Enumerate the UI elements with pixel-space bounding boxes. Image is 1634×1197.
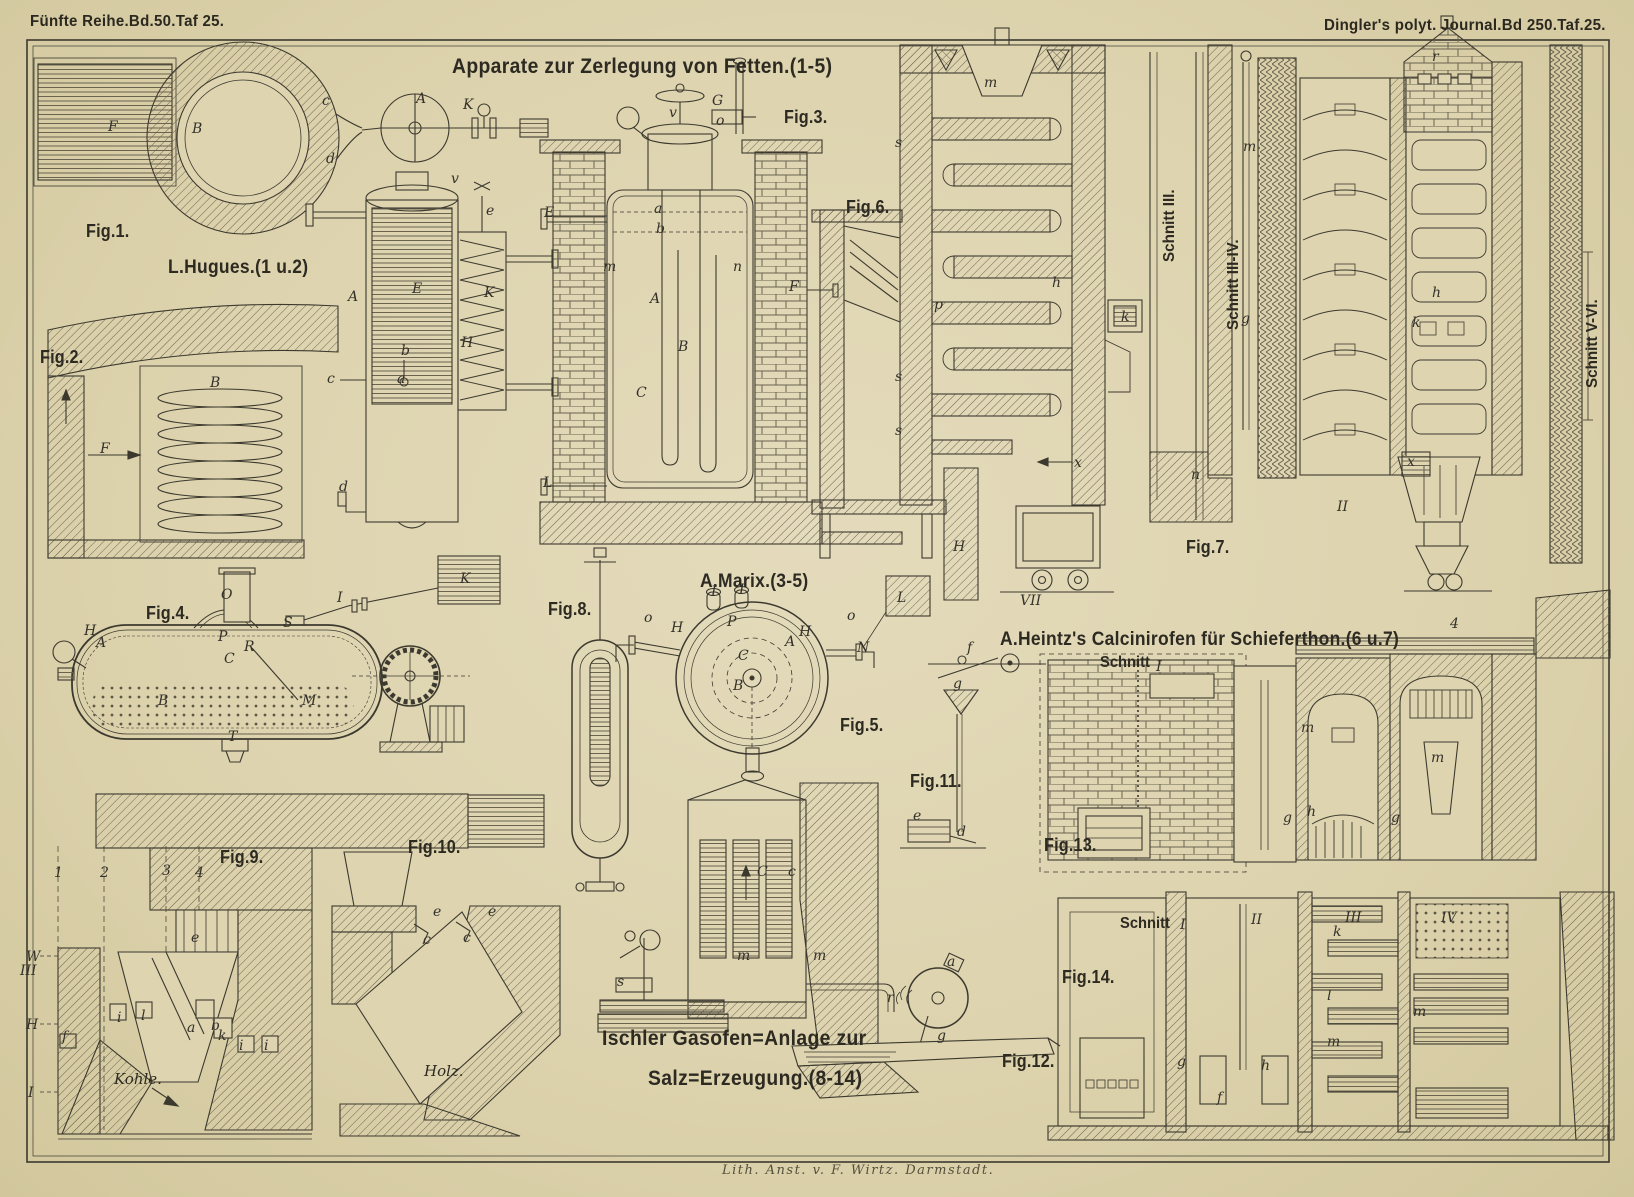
part-label: 4: [195, 866, 204, 880]
part-label: i: [239, 1039, 243, 1053]
part-label: k: [1121, 310, 1129, 324]
part-label: r: [1432, 50, 1439, 64]
part-label: 3: [162, 864, 171, 878]
part-label: R: [244, 640, 255, 654]
part-label: p: [934, 298, 943, 312]
part-label: o: [847, 609, 855, 623]
part-label: g: [937, 1029, 946, 1043]
part-label: K: [463, 98, 473, 112]
part-label: h: [1261, 1059, 1270, 1073]
engraving: [0, 0, 1634, 1197]
lithographer-credit: Lith. Anst. v. F. Wirtz. Darmstadt.: [722, 1164, 994, 1177]
part-label: r: [887, 991, 894, 1005]
fig5-label: Fig.5.: [840, 716, 883, 734]
part-label: II: [1337, 500, 1348, 514]
part-label: A: [96, 636, 106, 650]
part-label: g: [1241, 312, 1250, 326]
fig7-drawing: [1150, 16, 1593, 591]
part-label: a: [947, 955, 955, 969]
part-label: b: [401, 344, 410, 358]
part-label: h: [1052, 276, 1061, 290]
part-label: f: [967, 641, 972, 655]
part-label: c: [788, 865, 796, 879]
part-label: e: [191, 931, 199, 945]
fig1-label: Fig.1.: [86, 222, 129, 240]
part-label: C: [738, 649, 749, 663]
part-label: M: [302, 694, 316, 708]
part-label: g: [1391, 811, 1400, 825]
lithograph-plate: Fünfte Reihe.Bd.50.Taf 25. Dingler's pol…: [0, 0, 1634, 1197]
part-label: A: [785, 635, 795, 649]
part-label: L: [543, 476, 552, 490]
part-label: B: [733, 679, 743, 693]
part-label: VII: [1020, 594, 1041, 608]
part-label: a: [397, 372, 405, 386]
part-label: x: [1074, 456, 1082, 470]
part-label: B: [192, 122, 202, 136]
part-label: m: [984, 76, 997, 90]
fig4-drawing: [53, 556, 500, 762]
part-label: k: [1412, 316, 1420, 330]
journal-title-right: Dingler's polyt. Journal.Bd 250.Taf.25.: [1324, 18, 1606, 34]
fig12-label: Fig.12.: [1002, 1052, 1055, 1070]
part-label: H: [799, 625, 811, 639]
part-label: n: [733, 260, 742, 274]
part-label: c: [463, 931, 471, 945]
ischler-oven-drawing: [598, 780, 894, 1060]
part-label: III: [20, 964, 37, 978]
part-label: H: [671, 621, 683, 635]
part-label: f: [1217, 1091, 1222, 1105]
part-label: e: [486, 204, 494, 218]
fig4-label: Fig.4.: [146, 604, 189, 622]
part-label: k: [1333, 925, 1341, 939]
kohle-label: Kohle.: [114, 1072, 162, 1087]
part-label: E: [412, 282, 422, 296]
part-label: B: [158, 694, 168, 708]
part-label: h: [1307, 805, 1316, 819]
fig8-label: Fig.8.: [548, 600, 591, 618]
fig6-label: Fig.6.: [846, 198, 889, 216]
fig7-label: Fig.7.: [1186, 538, 1229, 556]
part-label: c: [423, 933, 431, 947]
part-label: x: [1407, 455, 1415, 469]
fig3-label: Fig.3.: [784, 108, 827, 126]
part-label: a: [654, 202, 662, 216]
part-label: m: [813, 949, 826, 963]
part-label: T: [228, 730, 237, 744]
part-label: d: [339, 480, 348, 494]
fig14-numeral: I: [1180, 918, 1186, 932]
part-label: a: [187, 1021, 195, 1035]
fig14-numeral: II: [1251, 913, 1262, 927]
part-label: A: [348, 290, 358, 304]
fig9-label: Fig.9.: [220, 848, 263, 866]
fig11-drawing: [900, 654, 1046, 848]
part-label: b: [656, 222, 665, 236]
part-label: O: [221, 588, 232, 602]
part-label: e: [913, 809, 921, 823]
fig2-label: Fig.2.: [40, 348, 83, 366]
part-label: K: [484, 286, 494, 300]
part-label: I: [739, 583, 745, 597]
part-label: l: [1327, 989, 1331, 1003]
schnitt-3-4-label: Schnitt III-IV.: [1226, 239, 1242, 330]
part-label: G: [712, 94, 723, 108]
fig13-label: Fig.13.: [1044, 836, 1097, 854]
part-label: m: [1431, 751, 1444, 765]
heintz-title: A.Heintz's Calcinirofen für Schieferthon…: [1000, 630, 1399, 649]
part-label: 2: [100, 866, 109, 880]
fig14-numeral: III: [1345, 911, 1362, 925]
schnitt-5-6-label: Schnitt V-VI.: [1585, 299, 1601, 388]
part-label: s: [895, 424, 902, 438]
schnitt-3-label: Schnitt III.: [1162, 189, 1178, 262]
fig10-drawing: [332, 852, 560, 1136]
part-label: I: [337, 591, 343, 605]
part-label: B: [210, 376, 220, 390]
part-label: m: [603, 260, 616, 274]
inventor-hugues: L.Hugues.(1 u.2): [168, 258, 308, 277]
fig2-drawing: [48, 304, 338, 558]
part-label: W: [26, 950, 40, 964]
part-label: c: [322, 94, 330, 108]
part-label: m: [737, 949, 750, 963]
part-label: N: [857, 641, 869, 655]
part-label: s: [617, 975, 624, 989]
fig5-drawing: [616, 576, 930, 781]
part-label: o: [716, 114, 724, 128]
schnitt-fig13-label: Schnitt: [1100, 655, 1150, 671]
part-label: n: [1191, 468, 1200, 482]
plate-number-left: Fünfte Reihe.Bd.50.Taf 25.: [30, 14, 224, 30]
fig11-label: Fig.11.: [910, 772, 962, 790]
part-label: B: [678, 340, 688, 354]
plate-main-title: Apparate zur Zerlegung von Fetten.(1-5): [452, 56, 832, 77]
part-label: s: [895, 136, 902, 150]
part-label: g: [1283, 811, 1292, 825]
part-label: 4: [1450, 617, 1459, 631]
part-label: I: [1156, 660, 1162, 674]
schnitt-fig14-label: Schnitt: [1120, 916, 1170, 932]
ischler-title-line1: Ischler Gasofen=Anlage zur: [602, 1028, 867, 1049]
part-label: h: [1432, 286, 1441, 300]
part-label: c: [327, 372, 335, 386]
part-label: F: [789, 280, 799, 294]
part-label: H: [461, 336, 473, 350]
part-label: C: [224, 652, 235, 666]
part-label: I: [28, 1086, 34, 1100]
ischler-title-line2: Salz=Erzeugung.(8-14): [648, 1068, 862, 1089]
part-label: v: [451, 172, 459, 186]
part-label: F: [108, 120, 118, 134]
part-label: L: [897, 591, 906, 605]
part-label: e: [488, 905, 496, 919]
fig6-drawing: [812, 28, 1203, 600]
part-label: H: [84, 624, 96, 638]
part-label: H: [953, 540, 965, 554]
part-label: m: [1413, 1005, 1426, 1019]
part-label: C: [757, 865, 768, 879]
part-label: F: [100, 442, 110, 456]
part-label: o: [644, 611, 652, 625]
part-label: i: [117, 1011, 121, 1025]
part-label: i: [264, 1039, 268, 1053]
part-label: H: [26, 1018, 38, 1032]
part-label: A: [650, 292, 660, 306]
part-label: K: [460, 572, 470, 586]
fig14-numeral: IV: [1441, 911, 1457, 925]
part-label: m: [1327, 1035, 1340, 1049]
part-label: m: [1301, 721, 1314, 735]
fig14-label: Fig.14.: [1062, 968, 1115, 986]
part-label: e: [433, 905, 441, 919]
part-label: 1: [54, 866, 63, 880]
part-label: v: [669, 106, 677, 120]
part-label: P: [218, 630, 227, 644]
part-label: m: [1243, 140, 1256, 154]
part-label: g: [1177, 1055, 1186, 1069]
part-label: k: [218, 1029, 226, 1043]
part-label: I: [711, 585, 717, 599]
holz-label: Holz.: [424, 1064, 464, 1079]
part-label: d: [326, 152, 335, 166]
fig10-label: Fig.10.: [408, 838, 461, 856]
part-label: g: [953, 677, 962, 691]
part-label: l: [141, 1009, 145, 1023]
part-label: P: [727, 615, 736, 629]
part-label: A: [416, 92, 426, 106]
part-label: s: [895, 370, 902, 384]
hugues-column-drawing: [306, 172, 558, 528]
part-label: E: [544, 206, 554, 220]
part-label: S: [283, 616, 293, 630]
part-label: f: [62, 1030, 67, 1044]
part-label: d: [957, 825, 966, 839]
part-label: C: [636, 386, 647, 400]
